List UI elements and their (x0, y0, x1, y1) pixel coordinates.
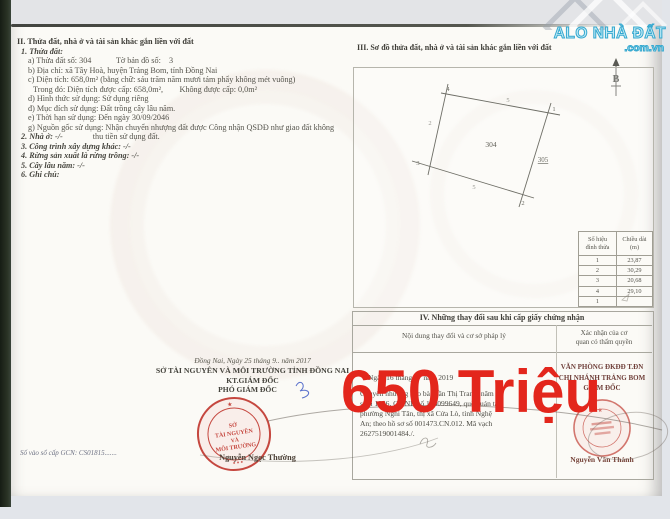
header-line: (m) (630, 244, 639, 251)
table-cell: 29,10 (617, 286, 653, 296)
header-line: đỉnh thửa (586, 244, 610, 251)
table-row: 1 (579, 296, 653, 306)
certificate-photo: II. Thửa đất, nhà ở và tài sản khác gắn … (0, 0, 670, 519)
table-cell (617, 296, 653, 306)
table-row: 123,87 (579, 256, 653, 266)
vertex-length-table: Số hiệu đỉnh thửa Chiều dài (m) 123,87 2… (578, 231, 653, 307)
section-4-col-left-header: Nội dung thay đổi và cơ sở pháp lý (356, 331, 552, 340)
table-header-length: Chiều dài (m) (617, 232, 653, 256)
line-area: c) Diện tích: 658,0m² (bằng chữ: sáu tră… (17, 75, 345, 85)
section-2-title: II. Thửa đất, nhà ở và tài sản khác gắn … (17, 37, 345, 47)
table-header-row: Số hiệu đỉnh thửa Chiều dài (m) (579, 232, 653, 256)
deputy-director-title: PHÓ GIÁM ĐỐC (160, 385, 335, 394)
header-line: Chiều dài (622, 236, 646, 243)
table-row: 230,29 (579, 266, 653, 276)
line-use-form: d) Hình thức sử dụng: Sử dụng riêng (17, 94, 345, 104)
line-use-origin-cont: thu tiền sử dụng đất. (65, 132, 160, 141)
kt-giam-doc: KT.GIÁM ĐỐC (160, 376, 345, 385)
page-fold-line (11, 24, 619, 27)
section-2-land-parcel: II. Thửa đất, nhà ở và tài sản khác gắn … (17, 37, 345, 180)
table-cell: 2 (579, 266, 617, 276)
section-4-title: IV. Những thay đổi sau khi cấp giấy chứn… (352, 313, 652, 322)
table-cell: 30,29 (617, 266, 653, 276)
table-cell: 1 (579, 256, 617, 266)
entry-line: 2627519001484./. (360, 429, 552, 439)
table-cell: 4 (579, 286, 617, 296)
col-right-line: quan có thẩm quyền (558, 338, 650, 347)
item-ghi-chu: 6. Ghi chú: (17, 170, 345, 180)
line-address: b) Địa chỉ: xã Tây Hoà, huyện Trảng Bom,… (17, 66, 345, 76)
book-cover-edge (0, 0, 11, 507)
col-right-line: Xác nhận của cơ (558, 329, 650, 338)
table-cell: 3 (579, 276, 617, 286)
price-overlay: 650 Triệu (341, 362, 601, 422)
line-use-origin: g) Nguồn gốc sử dụng: Nhận chuyển nhượng… (17, 123, 345, 133)
item-cong-trinh: 3. Công trình xây dựng khác: -/- (17, 142, 345, 152)
line-house-and-origin-cont: 2. Nhà ở: -/- thu tiền sử dụng đất. (17, 132, 345, 142)
alo-nha-dat-logo: ALO NHÀ ĐẤT .com.vn (548, 26, 666, 53)
table-row: 320,68 (579, 276, 653, 286)
issuing-org: SỞ TÀI NGUYÊN VÀ MÔI TRƯỜNG TỈNH ĐỒNG NA… (130, 366, 375, 375)
item-nha-o: 2. Nhà ở: -/- (17, 132, 63, 141)
office-signer-name: Nguyễn Văn Thành (548, 455, 656, 464)
table-cell: 20,68 (617, 276, 653, 286)
table-cell: 1 (579, 296, 617, 306)
item-rung-san-xuat: 4. Rừng sản xuất là rừng trồng: -/- (17, 151, 345, 161)
logo-text: ALO NHÀ ĐẤT (548, 26, 666, 42)
line-use-purpose: đ) Mục đích sử dụng: Đất trồng cây lâu n… (17, 104, 345, 114)
table-header-vertex: Số hiệu đỉnh thửa (579, 232, 617, 256)
line-parcel-number: a) Thửa đất số: 304 Tờ bản đồ số: 3 (17, 56, 345, 66)
certificate-book-number: Số vào sổ cấp GCN: CS01815....... (20, 449, 117, 457)
logo-domain: .com.vn (548, 43, 666, 54)
item-thua-dat: 1. Thửa đất: (17, 47, 345, 57)
item-cay-lau-nam: 5. Cây lâu năm: -/- (17, 161, 345, 171)
table-cell: 23,87 (617, 256, 653, 266)
header-line: Số hiệu (588, 236, 607, 243)
line-area-detail: Trong đó: Diện tích được cấp: 658,0m², K… (17, 85, 345, 95)
section-4-col-right-header: Xác nhận của cơ quan có thẩm quyền (558, 329, 650, 346)
table-row: 429,10 (579, 286, 653, 296)
deputy-director-name: Nguyễn Ngọc Thường (175, 453, 340, 462)
line-use-term: e) Thời hạn sử dụng: Đến ngày 30/09/2046 (17, 113, 345, 123)
issue-date-line: Đồng Nai, Ngày 25 tháng 9.. năm 2017 (160, 356, 345, 365)
